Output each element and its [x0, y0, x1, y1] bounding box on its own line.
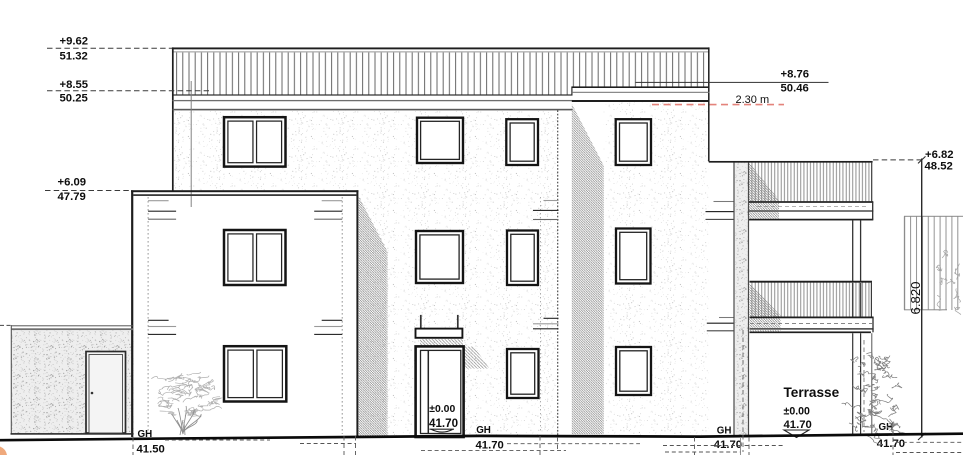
svg-text:6.820: 6.820 — [908, 281, 923, 314]
svg-text:Terrasse: Terrasse — [784, 385, 840, 400]
svg-text:41.50: 41.50 — [137, 443, 165, 455]
svg-text:47.79: 47.79 — [58, 191, 86, 203]
svg-text:50.46: 50.46 — [781, 82, 809, 94]
svg-text:+9.62: +9.62 — [60, 36, 89, 48]
svg-text:GH: GH — [476, 425, 491, 436]
svg-text:+8.76: +8.76 — [781, 69, 810, 81]
svg-text:50.25: 50.25 — [60, 92, 88, 104]
svg-text:51.32: 51.32 — [60, 51, 88, 63]
svg-text:2.30 m: 2.30 m — [736, 94, 770, 106]
svg-text:48.52: 48.52 — [925, 160, 953, 172]
svg-text:41.70: 41.70 — [714, 439, 742, 451]
svg-text:+8.55: +8.55 — [60, 79, 89, 91]
svg-text:41.70: 41.70 — [877, 438, 905, 450]
svg-text:+6.09: +6.09 — [58, 177, 87, 189]
svg-text:41.70: 41.70 — [476, 439, 504, 451]
svg-text:41.70: 41.70 — [784, 419, 812, 431]
svg-text:±0.00: ±0.00 — [784, 406, 811, 418]
svg-text:41.70: 41.70 — [429, 417, 458, 430]
svg-text:±0.00: ±0.00 — [429, 404, 455, 415]
